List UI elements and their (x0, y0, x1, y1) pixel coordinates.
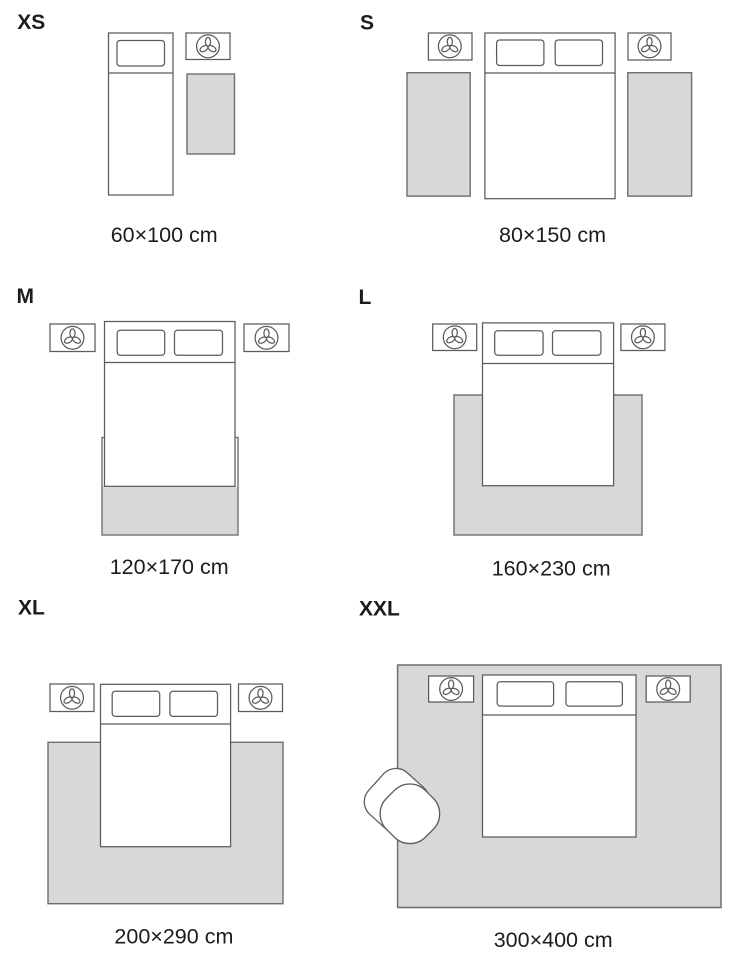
svg-text:60×100 cm: 60×100 cm (111, 223, 218, 247)
svg-text:160×230 cm: 160×230 cm (492, 557, 611, 581)
svg-text:XS: XS (17, 11, 45, 34)
svg-text:XXL: XXL (359, 597, 400, 620)
svg-text:200×290 cm: 200×290 cm (114, 925, 233, 949)
svg-text:L: L (359, 286, 372, 309)
svg-text:M: M (17, 285, 35, 308)
svg-text:120×170 cm: 120×170 cm (110, 555, 229, 579)
svg-text:300×400 cm: 300×400 cm (494, 928, 613, 952)
svg-text:XL: XL (18, 597, 45, 620)
svg-text:S: S (360, 12, 374, 35)
svg-text:80×150 cm: 80×150 cm (499, 223, 606, 247)
